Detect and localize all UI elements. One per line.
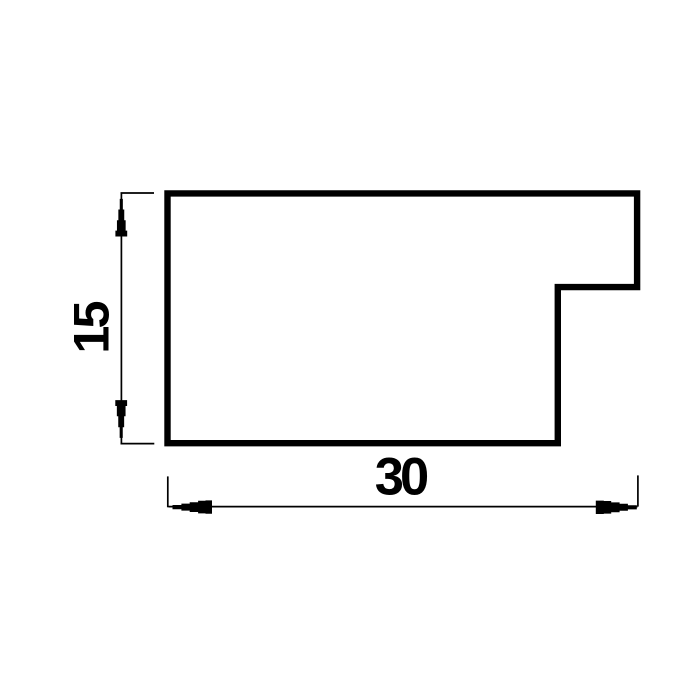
svg-text:15: 15: [62, 302, 119, 354]
svg-text:30: 30: [375, 448, 428, 507]
